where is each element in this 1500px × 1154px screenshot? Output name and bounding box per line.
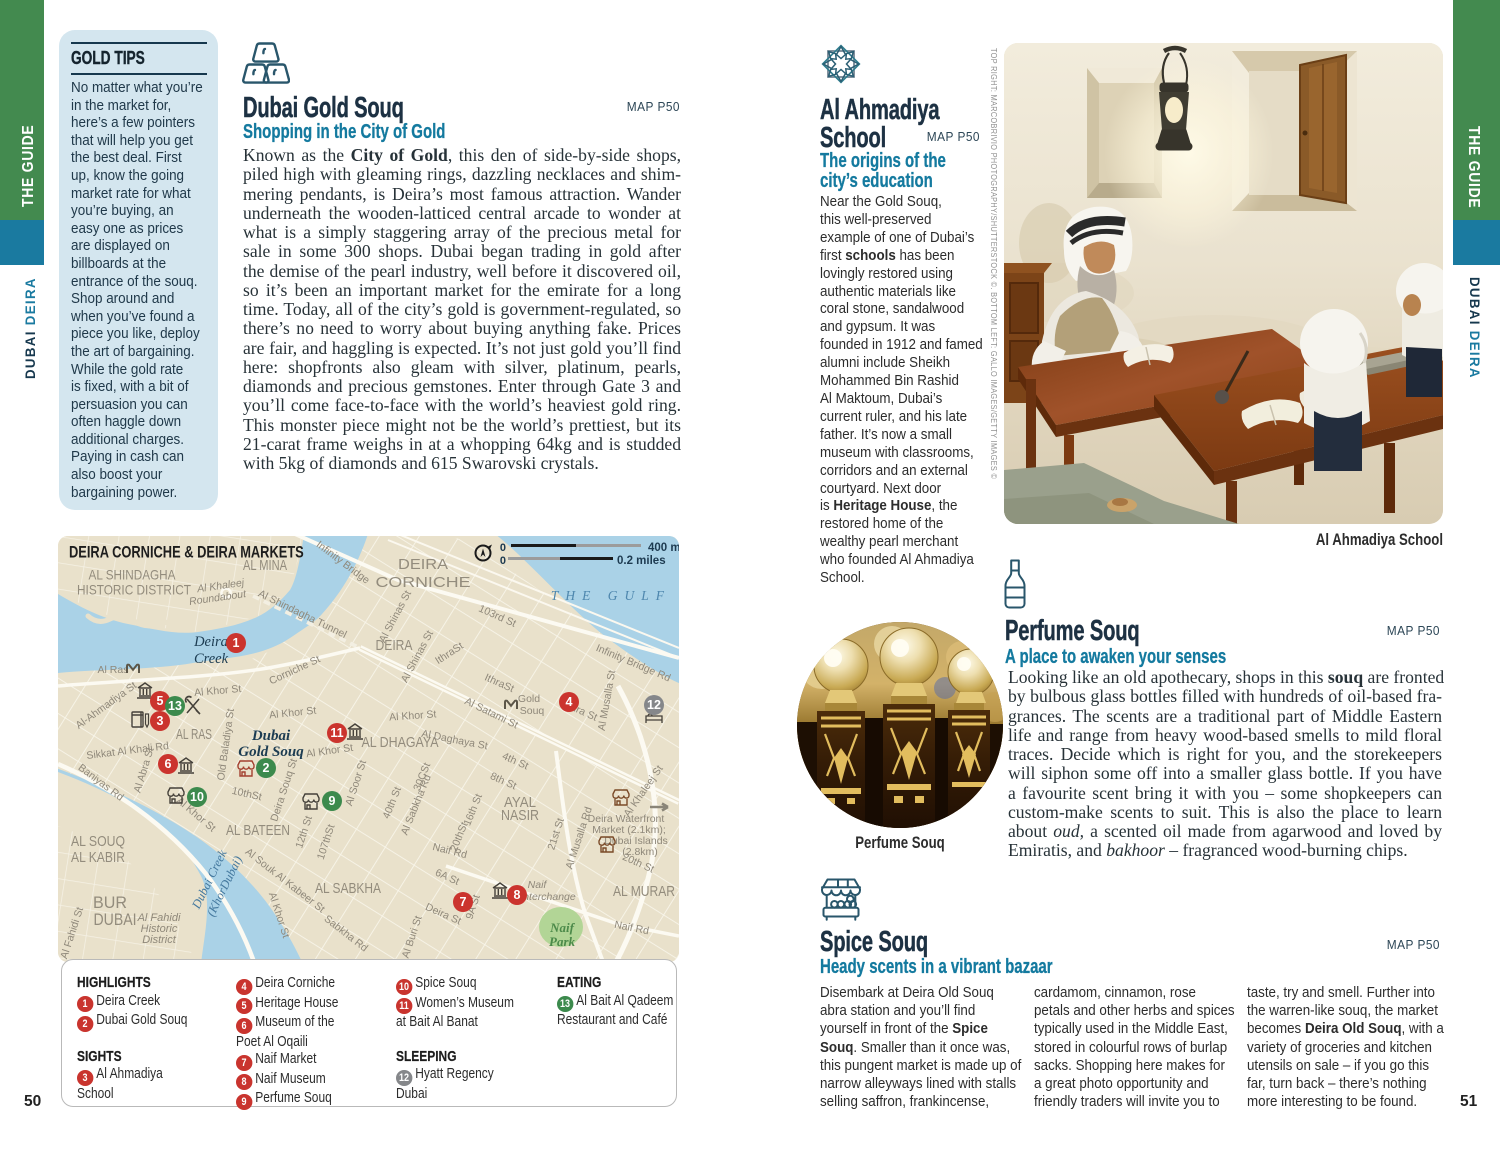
- svg-text:Creek: Creek: [194, 651, 229, 667]
- svg-text:AL RAS: AL RAS: [176, 726, 212, 743]
- svg-text:1: 1: [233, 636, 240, 650]
- svg-text:AL SHINDAGHA: AL SHINDAGHA: [89, 567, 177, 583]
- svg-text:10: 10: [190, 790, 204, 804]
- svg-text:0: 0: [500, 542, 506, 554]
- svg-text:Souq: Souq: [520, 705, 545, 717]
- svg-text:DUBAI: DUBAI: [94, 911, 137, 929]
- svg-text:7: 7: [460, 895, 467, 909]
- svg-text:4: 4: [566, 695, 573, 709]
- svg-text:Park: Park: [549, 934, 576, 949]
- svg-text:11: 11: [330, 726, 343, 740]
- svg-text:AL MURAR: AL MURAR: [613, 883, 675, 900]
- svg-text:Interchange: Interchange: [520, 891, 576, 903]
- svg-text:DEIRA: DEIRA: [398, 556, 448, 573]
- svg-text:3: 3: [157, 714, 164, 728]
- svg-text:AL KABIR: AL KABIR: [71, 849, 125, 866]
- svg-text:13: 13: [168, 699, 182, 713]
- svg-text:AL SABKHA: AL SABKHA: [315, 880, 381, 897]
- svg-text:BUR: BUR: [93, 894, 127, 912]
- svg-text:8: 8: [514, 888, 521, 902]
- svg-text:6: 6: [165, 757, 172, 771]
- svg-text:Naif: Naif: [528, 879, 548, 891]
- svg-text:2: 2: [263, 761, 270, 775]
- svg-text:NASIR: NASIR: [501, 807, 539, 824]
- svg-text:Gold: Gold: [518, 693, 540, 705]
- svg-text:AL BATEEN: AL BATEEN: [226, 822, 290, 839]
- svg-text:Deira: Deira: [193, 634, 228, 650]
- svg-text:District: District: [142, 934, 177, 946]
- svg-text:9: 9: [329, 794, 336, 808]
- svg-text:Naif: Naif: [549, 920, 576, 935]
- svg-text:5: 5: [157, 694, 164, 708]
- svg-text:CORNICHE: CORNICHE: [376, 574, 471, 591]
- svg-text:0.2 miles: 0.2 miles: [617, 555, 666, 567]
- svg-text:Dubai: Dubai: [251, 728, 291, 744]
- svg-text:(2.8km): (2.8km): [622, 846, 658, 858]
- svg-text:HISTORIC DISTRICT: HISTORIC DISTRICT: [77, 582, 191, 598]
- svg-text:AL MINA: AL MINA: [243, 557, 287, 574]
- svg-text:12: 12: [647, 698, 661, 712]
- svg-text:AL SOUQ: AL SOUQ: [71, 833, 125, 850]
- svg-text:400 m: 400 m: [648, 542, 679, 554]
- svg-text:THE GULF: THE GULF: [551, 588, 671, 603]
- svg-text:Al Ras: Al Ras: [98, 664, 129, 676]
- svg-text:0: 0: [500, 555, 506, 567]
- svg-text:Gold Souq: Gold Souq: [238, 744, 304, 760]
